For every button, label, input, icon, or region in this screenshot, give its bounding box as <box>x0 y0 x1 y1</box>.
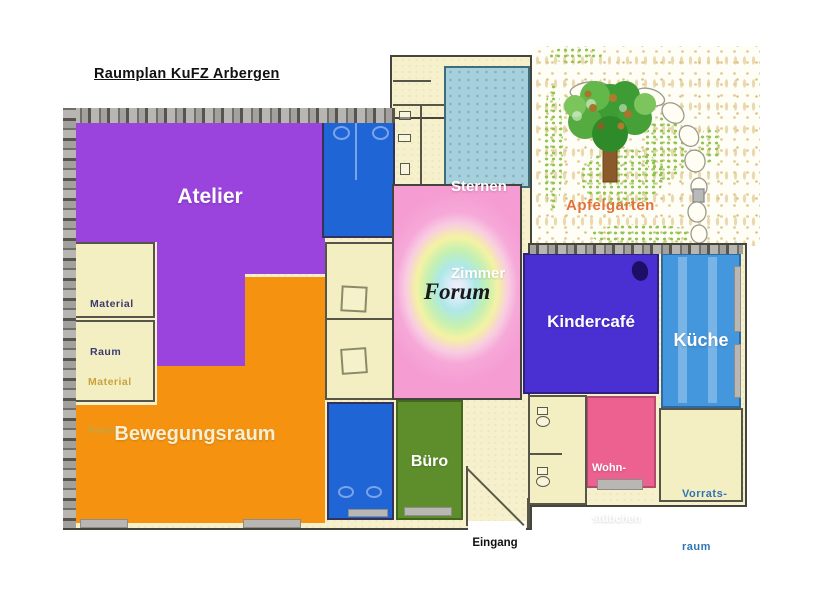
room-sternenzimmer-label: Sternen Zimmer <box>451 113 507 347</box>
toilet-icon <box>537 407 548 415</box>
label-line: stübchen <box>592 511 641 528</box>
inner-wall <box>420 106 422 186</box>
entrance-gap <box>468 521 526 533</box>
entrance-label: Eingang <box>455 537 535 549</box>
room-forum-label: Forum <box>392 279 522 305</box>
label-line: Sternen <box>451 172 507 201</box>
furniture-square <box>340 285 367 312</box>
room-wc-lower-left <box>327 402 394 520</box>
label-line: Vorrats- <box>682 486 727 504</box>
sink-icon <box>372 126 389 140</box>
room-kueche-label: Küche <box>661 330 741 351</box>
room-material-raum-2-label: Material Raum <box>88 341 132 471</box>
room-kindercafe-label: Kindercafé <box>523 312 659 332</box>
toilet-icon <box>536 416 550 427</box>
toilet-icon <box>536 476 550 487</box>
toilet-icon <box>400 163 410 175</box>
window-bar <box>243 519 301 528</box>
room-bewegungsraum-label: Bewegungsraum <box>75 423 315 446</box>
inner-wall <box>325 318 395 320</box>
apple-tree-icon <box>564 81 656 182</box>
toilet-icon <box>366 486 382 498</box>
toilet-icon <box>398 134 411 142</box>
label-line: Material <box>90 296 134 312</box>
window-bar <box>734 344 741 398</box>
toilet-icon <box>537 467 548 475</box>
window-bar <box>348 509 388 517</box>
toilet-icon <box>338 486 354 498</box>
window-bar <box>80 519 128 528</box>
window-bar <box>404 507 452 516</box>
stall-divider <box>355 118 357 180</box>
inner-wall <box>527 498 530 528</box>
apfelgarten-label: Apfelgarten <box>566 197 655 214</box>
room-buero-label: Büro <box>396 453 463 471</box>
sink-icon <box>333 126 350 140</box>
toilet-icon <box>399 111 411 120</box>
furniture-square <box>340 347 368 375</box>
room-corridor-cabinets <box>325 242 395 400</box>
wall-band-top <box>63 108 395 123</box>
window-bar <box>734 266 741 332</box>
inner-wall <box>466 466 468 526</box>
page-title: Raumplan KuFZ Arbergen <box>94 66 280 82</box>
room-wohnstuebchen-label: Wohn- stübchen <box>592 426 641 562</box>
garden-graphics <box>533 46 760 246</box>
wall-band-right-top <box>530 245 743 254</box>
floorplan-canvas: Raumplan KuFZ Arbergen Atelier Material … <box>0 0 840 594</box>
inner-wall <box>528 453 562 455</box>
room-vorratsraum-label: Vorrats- raum <box>682 451 727 592</box>
room-atelier-label: Atelier <box>130 185 290 209</box>
label-line: Wohn- <box>592 460 641 477</box>
inner-wall <box>393 80 431 82</box>
label-line: raum <box>682 539 727 557</box>
wall-band-left <box>63 108 76 528</box>
inner-wall <box>393 104 444 106</box>
label-line: Material <box>88 374 132 390</box>
